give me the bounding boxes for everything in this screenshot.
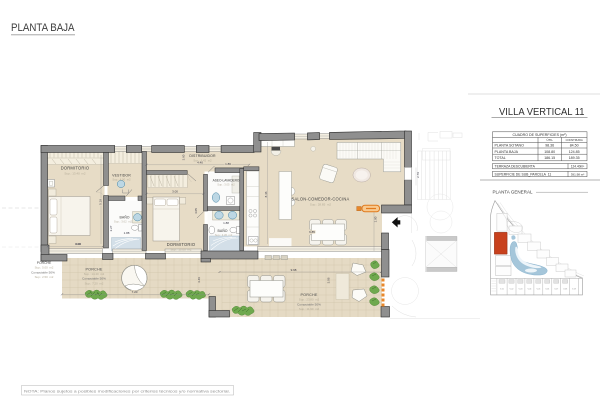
svg-text:Sup.: 7.20 m2: Sup.: 7.20 m2 <box>85 281 104 285</box>
svg-text:PLANTA GENERAL: PLANTA GENERAL <box>493 190 533 195</box>
svg-text:2.27: 2.27 <box>109 225 113 231</box>
svg-text:Sup.: 13.40 m2: Sup.: 13.40 m2 <box>64 171 86 175</box>
svg-text:124.40m²: 124.40m² <box>571 165 584 169</box>
svg-text:Sup.: 2.50 m2: Sup.: 2.50 m2 <box>35 275 54 279</box>
svg-text:V-04: V-04 <box>527 289 531 291</box>
svg-text:Sup.: 23.80 m2: Sup.: 23.80 m2 <box>299 298 320 302</box>
svg-text:7.20: 7.20 <box>132 290 138 294</box>
svg-text:108.80: 108.80 <box>544 150 555 154</box>
svg-text:TERRAZA DESCUBIERTA: TERRAZA DESCUBIERTA <box>495 165 536 169</box>
svg-text:Sup.: 13.00 m2: Sup.: 13.00 m2 <box>170 248 192 252</box>
svg-text:Sup.: 28.85 m2: Sup.: 28.85 m2 <box>310 202 332 206</box>
svg-text:V-02: V-02 <box>510 289 514 291</box>
svg-text:3.06: 3.06 <box>326 277 330 283</box>
svg-text:DISTRIBUIDOR: DISTRIBUIDOR <box>189 154 216 158</box>
svg-text:9.98: 9.98 <box>291 268 297 272</box>
svg-text:1.88: 1.88 <box>223 221 229 225</box>
svg-text:DORMITORIO: DORMITORIO <box>61 166 90 171</box>
svg-text:8.46: 8.46 <box>264 191 268 197</box>
svg-text:1.90: 1.90 <box>373 216 377 222</box>
svg-text:V-01: V-01 <box>500 289 504 291</box>
svg-text:Sup.: 3.45 m2: Sup.: 3.45 m2 <box>215 233 233 237</box>
svg-text:PLANTA BAJA: PLANTA BAJA <box>11 22 75 34</box>
svg-text:Sup.: 3.05 m2: Sup.: 3.05 m2 <box>217 182 235 186</box>
svg-text:3.00: 3.00 <box>75 242 81 246</box>
svg-text:V-06: V-06 <box>545 289 549 291</box>
svg-text:4.40: 4.40 <box>197 161 203 165</box>
svg-text:DORMITORIO: DORMITORIO <box>167 242 196 247</box>
svg-text:V-05: V-05 <box>536 289 540 291</box>
svg-text:Computable 50%: Computable 50% <box>297 302 321 306</box>
svg-text:Sup.: 4.00 m2: Sup.: 4.00 m2 <box>112 178 131 182</box>
svg-text:84.50: 84.50 <box>570 144 579 148</box>
svg-text:VILLA VERTICAL 11: VILLA VERTICAL 11 <box>499 107 585 118</box>
svg-text:1.88: 1.88 <box>124 231 130 235</box>
svg-text:PORCHE: PORCHE <box>37 261 52 265</box>
svg-text:NOTA: Planos sujetos a posible: NOTA: Planos sujetos a posibles modifica… <box>24 388 230 393</box>
svg-text:391.98 m²: 391.98 m² <box>571 173 585 177</box>
svg-text:ÚTIL: ÚTIL <box>546 137 553 142</box>
svg-text:V-07: V-07 <box>554 289 558 291</box>
svg-text:SUPERFICIE DE SUB_PARCELA 11: SUPERFICIE DE SUB_PARCELA 11 <box>495 173 552 177</box>
svg-text:124.85: 124.85 <box>569 150 580 154</box>
svg-text:189.35: 189.35 <box>569 156 580 160</box>
svg-text:Sup.: 11.90 m2: Sup.: 11.90 m2 <box>299 307 320 311</box>
svg-text:186.15: 186.15 <box>544 156 555 160</box>
svg-text:5.19: 5.19 <box>98 199 102 205</box>
svg-text:Sup.: 3.62 m2: Sup.: 3.62 m2 <box>114 220 133 224</box>
svg-text:TOTAL: TOTAL <box>495 156 506 160</box>
svg-text:4.46: 4.46 <box>197 277 201 283</box>
svg-text:3.60: 3.60 <box>181 154 185 160</box>
svg-text:PLANTA SOTANO: PLANTA SOTANO <box>495 144 525 148</box>
svg-text:SALON-COMEDOR-COCINA: SALON-COMEDOR-COCINA <box>292 197 350 202</box>
svg-text:PLANTA BAJA: PLANTA BAJA <box>495 150 519 154</box>
svg-text:V-08: V-08 <box>563 289 567 291</box>
svg-text:Sup.: 14.40 m2: Sup.: 14.40 m2 <box>84 272 105 276</box>
svg-text:PORCHE: PORCHE <box>86 268 103 272</box>
svg-text:PORCHE: PORCHE <box>301 293 318 297</box>
svg-text:98.36: 98.36 <box>545 144 554 148</box>
svg-text:6.85: 6.85 <box>309 230 315 234</box>
svg-text:4.05: 4.05 <box>194 208 198 214</box>
svg-text:Sup.: 5.00 m2: Sup.: 5.00 m2 <box>35 266 54 270</box>
svg-text:BAÑO: BAÑO <box>218 228 228 233</box>
svg-text:V-09: V-09 <box>572 289 576 291</box>
svg-text:ASEO-LAVADERO: ASEO-LAVADERO <box>213 178 240 182</box>
svg-text:Computable 50%: Computable 50% <box>82 277 106 281</box>
svg-text:1.86: 1.86 <box>225 162 231 166</box>
svg-text:CUADRO DE SUPERFICIES (m²): CUADRO DE SUPERFICIES (m²) <box>512 133 566 137</box>
svg-text:3.00: 3.00 <box>172 190 178 194</box>
svg-text:2.79: 2.79 <box>416 172 420 178</box>
svg-text:CONSTRUIDA: CONSTRUIDA <box>566 138 583 142</box>
svg-text:Computable 50%: Computable 50% <box>31 270 55 274</box>
svg-text:V-03: V-03 <box>519 289 523 291</box>
